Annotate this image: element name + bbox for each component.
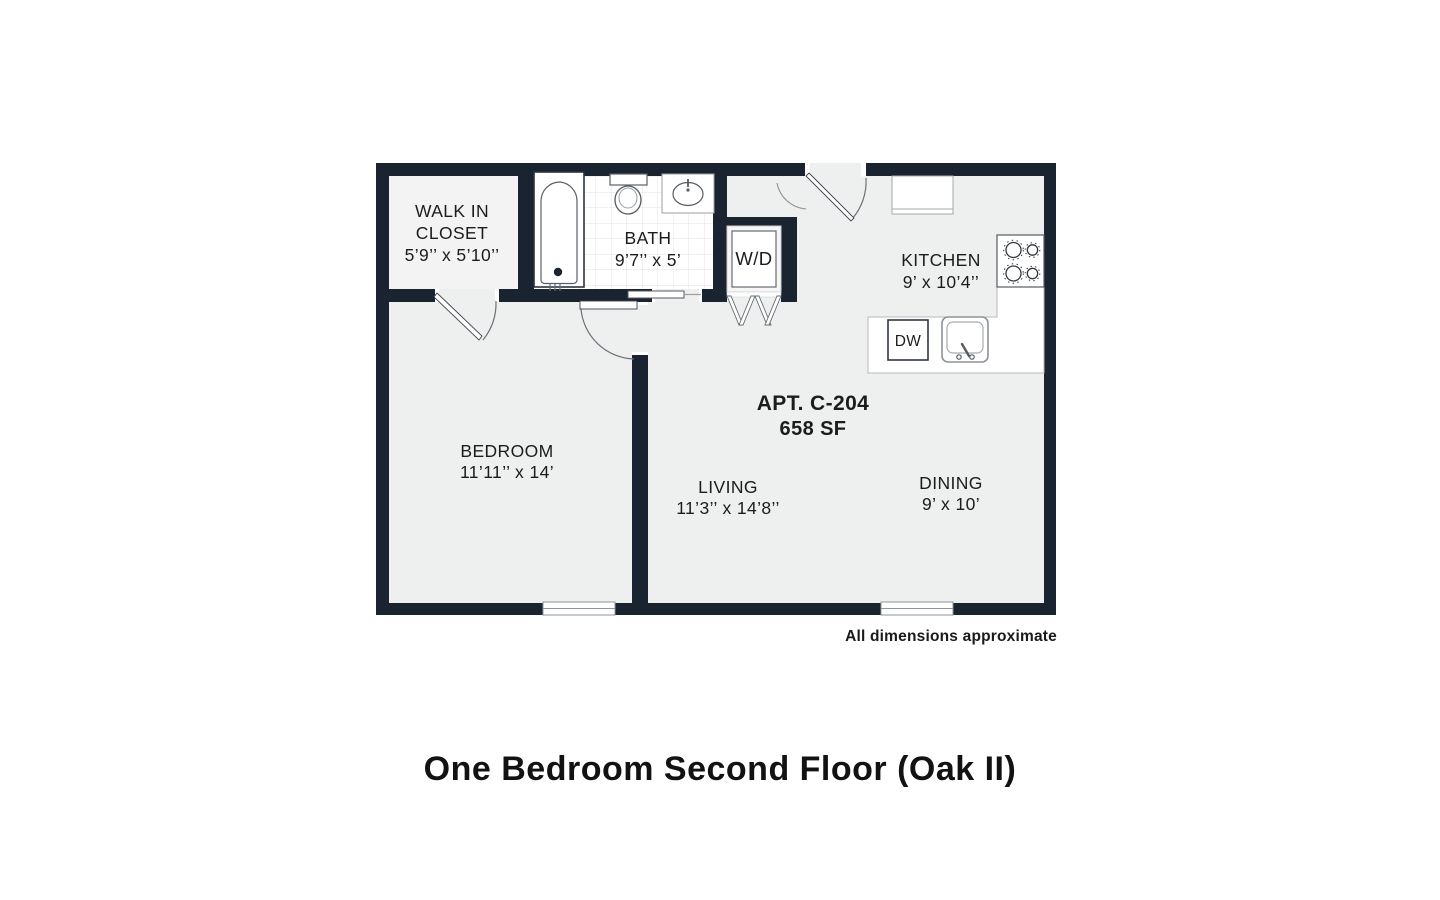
stove: [997, 235, 1044, 287]
closet-label-2: CLOSET: [416, 223, 488, 243]
kitchen-label: KITCHEN: [901, 250, 981, 270]
bedroom-label: BEDROOM: [460, 441, 553, 461]
living-dims: 11’3’’ x 14’8’’: [676, 498, 780, 518]
bathtub: [534, 172, 584, 291]
washer-dryer-label: W/D: [735, 248, 772, 269]
dishwasher-label: DW: [895, 333, 922, 350]
kitchen-dims: 9’ x 10’4’’: [903, 272, 979, 292]
closet-right-wall: [518, 163, 534, 302]
bedroom-dims: 11’11’’ x 14’: [460, 462, 554, 482]
bedroom-living-divider-wall: [632, 355, 648, 603]
dining-window: [881, 602, 953, 615]
bedroom-door-leaf: [580, 301, 637, 309]
entry-opening: [805, 163, 866, 177]
page-title: One Bedroom Second Floor (Oak II): [0, 750, 1440, 789]
dining-dims: 9’ x 10’: [922, 494, 980, 514]
bedroom-window: [543, 602, 615, 615]
wd-right-wall: [781, 217, 797, 302]
kitchen-sink: [942, 317, 988, 362]
vanity-sink: [662, 174, 714, 213]
bath-dims: 9’7’’ x 5’: [615, 250, 681, 270]
dimensions-footnote: All dimensions approximate: [0, 628, 1057, 646]
entry-jamb-right: [861, 163, 866, 177]
bath-label: BATH: [625, 228, 672, 248]
living-label: LIVING: [698, 477, 758, 497]
closet-label: WALK IN: [415, 201, 489, 221]
apartment-area: 658 SF: [780, 418, 847, 440]
closet-dims: 5’9’’ x 5’10’’: [405, 245, 500, 265]
dining-label: DINING: [919, 473, 983, 493]
apartment-number: APT. C-204: [757, 392, 870, 415]
bath-right-wall: [713, 163, 727, 302]
closet-bottom-wall-left: [389, 289, 435, 302]
floor-plan-page: WALK IN CLOSET 5’9’’ x 5’10’’ BATH 9’7’’…: [0, 0, 1440, 900]
fridge: [892, 176, 953, 214]
